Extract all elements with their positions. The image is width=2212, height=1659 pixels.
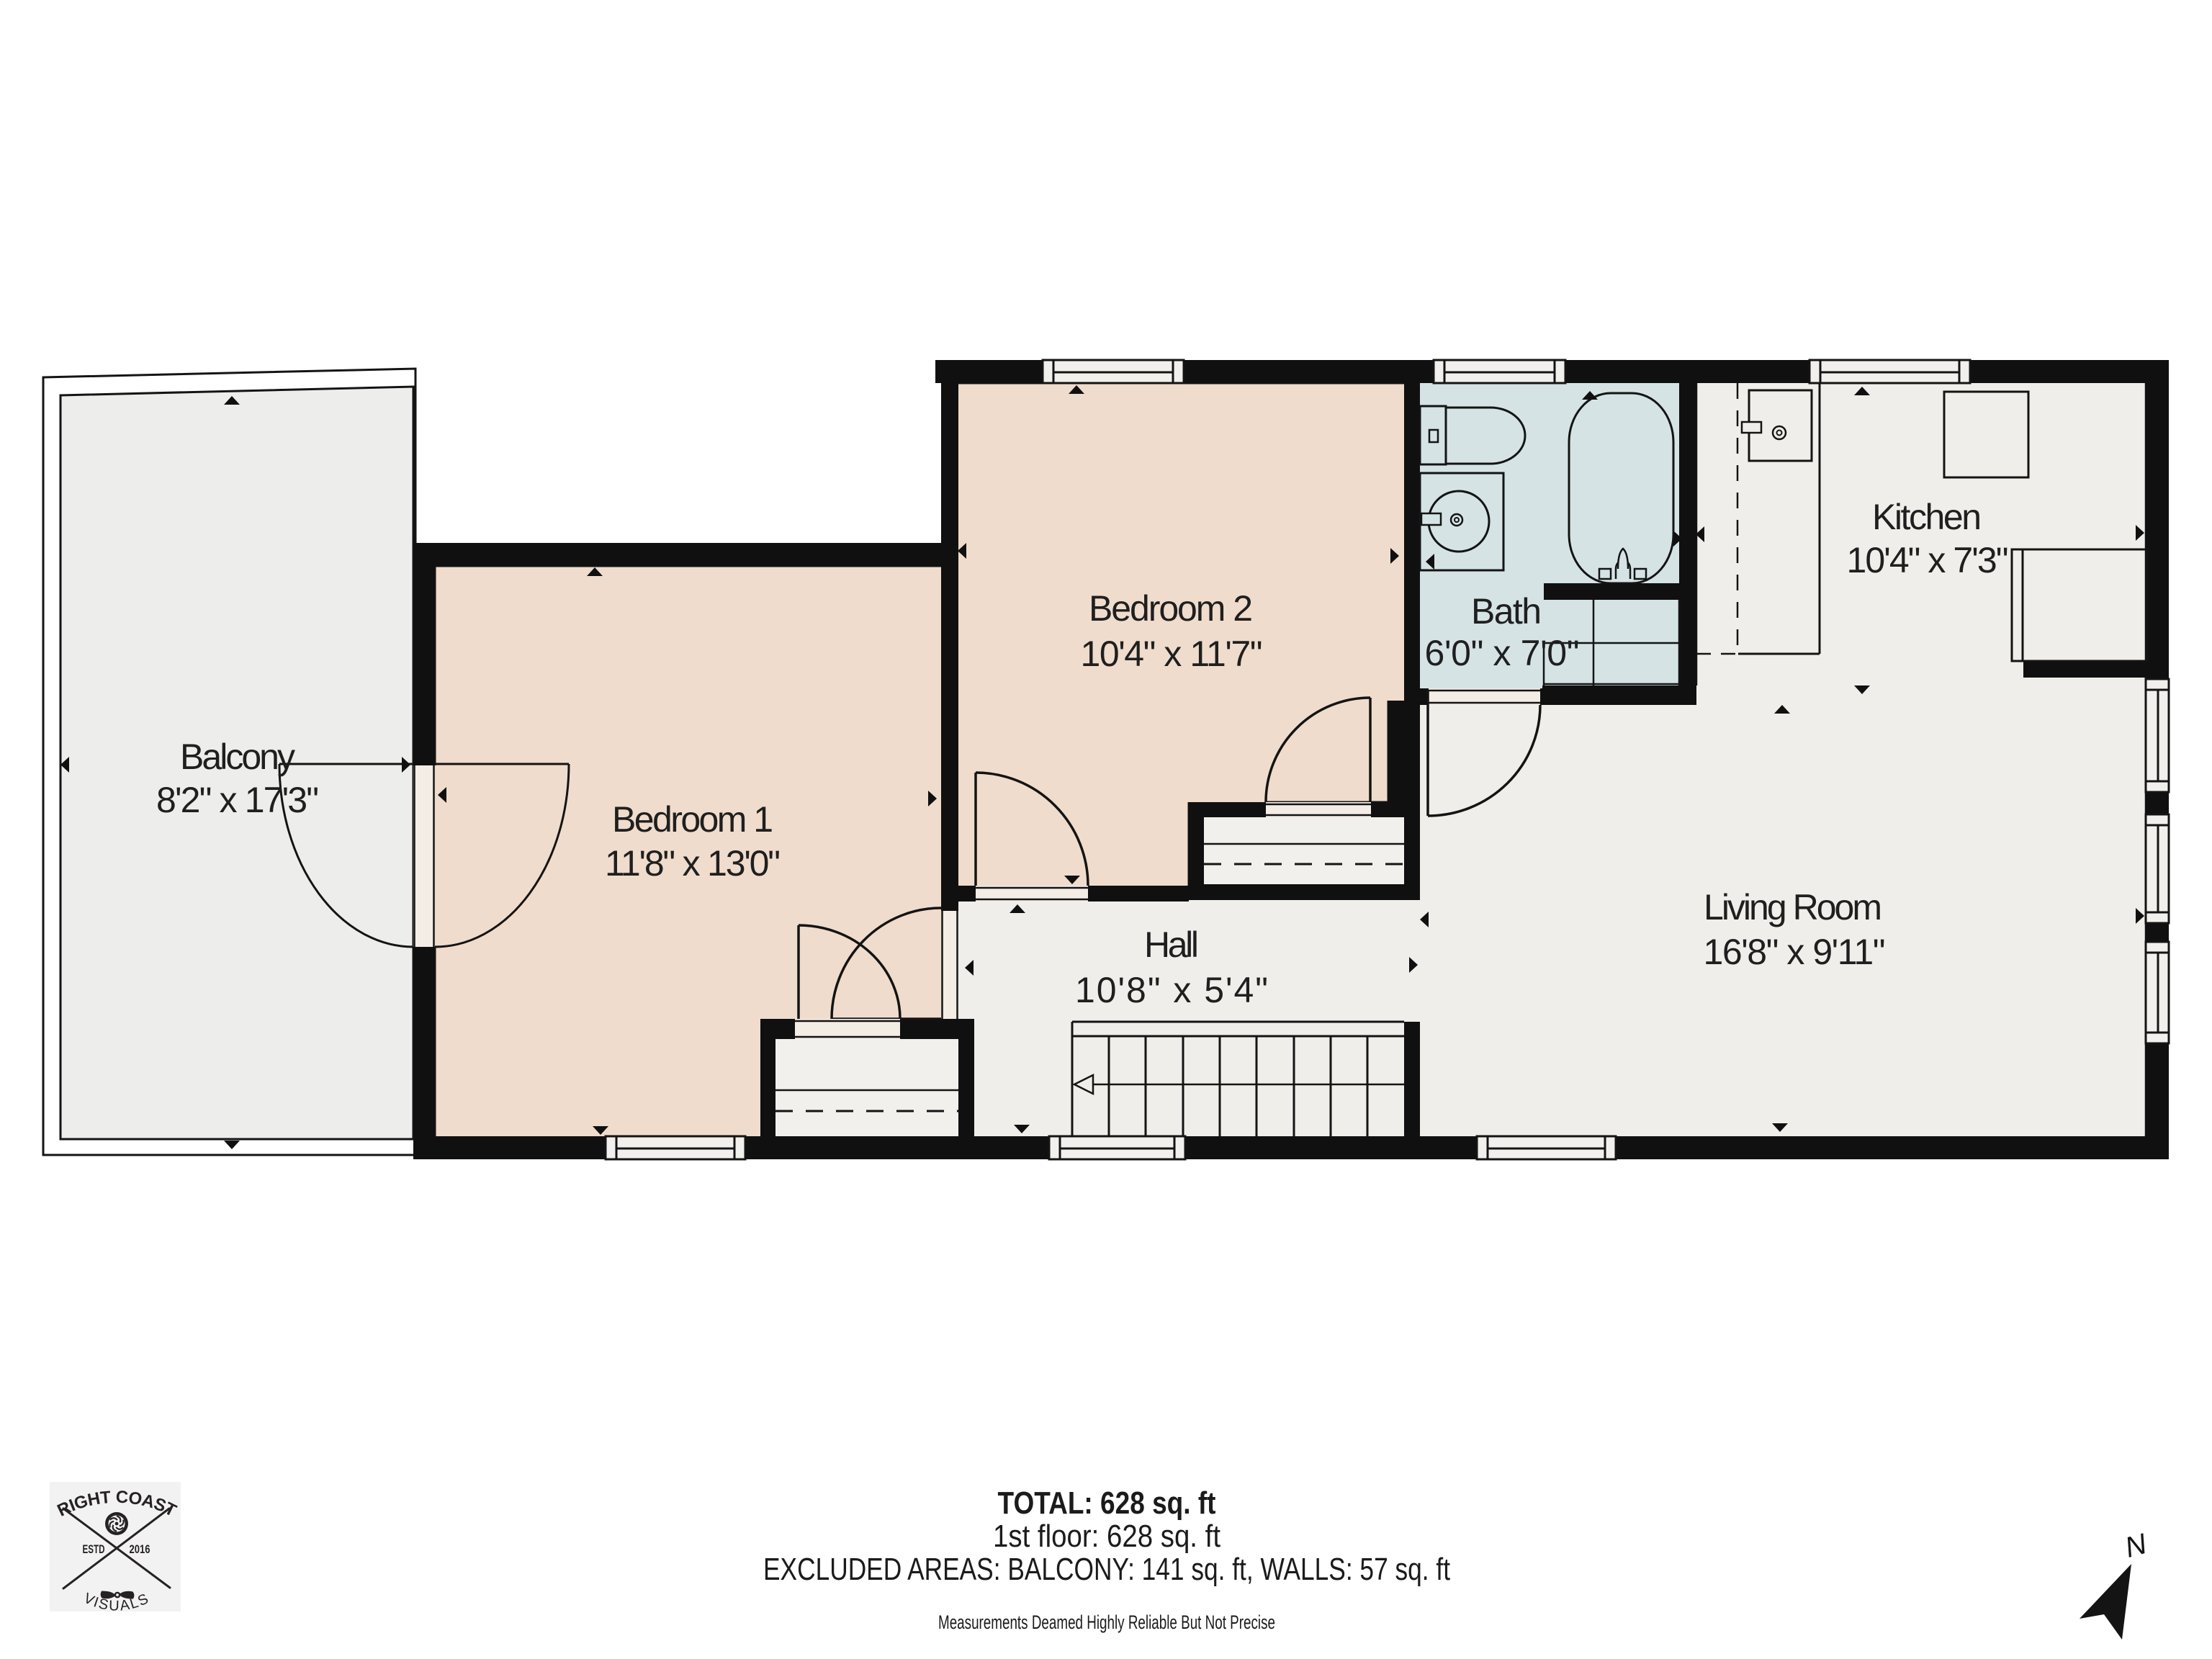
svg-text:10'4" x 7'3": 10'4" x 7'3" — [1847, 540, 2009, 580]
svg-text:16'8" x 9'11": 16'8" x 9'11" — [1704, 932, 1886, 972]
svg-text:8'2" x 17'3": 8'2" x 17'3" — [156, 780, 319, 820]
svg-text:Kitchen: Kitchen — [1872, 497, 1982, 537]
svg-text:1st floor: 628 sq. ft: 1st floor: 628 sq. ft — [993, 1519, 1220, 1554]
svg-text:Balcony: Balcony — [180, 737, 295, 777]
svg-text:10'4" x 11'7": 10'4" x 11'7" — [1081, 634, 1263, 674]
svg-text:Hall: Hall — [1144, 925, 1199, 965]
svg-text:ESTD: ESTD — [83, 1542, 105, 1556]
svg-text:Bath: Bath — [1471, 591, 1542, 631]
svg-text:Bedroom 1: Bedroom 1 — [612, 799, 773, 840]
svg-text:11'8" x 13'0": 11'8" x 13'0" — [605, 843, 781, 884]
svg-text:Living Room: Living Room — [1704, 887, 1882, 927]
svg-text:Bedroom 2: Bedroom 2 — [1089, 588, 1253, 629]
svg-text:2016: 2016 — [130, 1542, 150, 1556]
svg-text:EXCLUDED AREAS: BALCONY: 141 s: EXCLUDED AREAS: BALCONY: 141 sq. ft, WAL… — [763, 1552, 1450, 1587]
svg-text:10'8" x 5'4": 10'8" x 5'4" — [1075, 970, 1268, 1010]
svg-text:TOTAL: 628 sq. ft: TOTAL: 628 sq. ft — [998, 1485, 1216, 1521]
svg-text:6'0" x 7'0": 6'0" x 7'0" — [1425, 633, 1580, 673]
svg-text:Measurements Deamed Highly Rel: Measurements Deamed Highly Reliable But … — [938, 1611, 1275, 1633]
